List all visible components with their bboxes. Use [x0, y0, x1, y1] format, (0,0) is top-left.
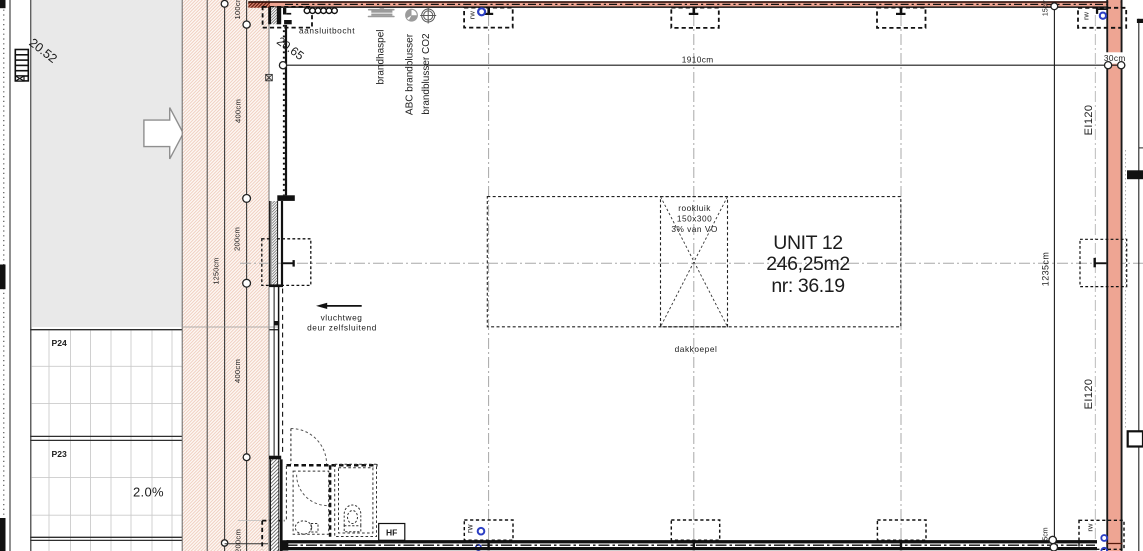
svg-text:400cm: 400cm	[233, 359, 242, 383]
svg-text:3% van VO: 3% van VO	[671, 224, 718, 234]
svg-text:nr: 36.19: nr: 36.19	[771, 275, 844, 297]
svg-text:EI120: EI120	[1083, 105, 1095, 136]
svg-text:rw: rw	[468, 11, 477, 20]
svg-text:deur zelfsluitend: deur zelfsluitend	[307, 323, 377, 333]
svg-text:1250cm: 1250cm	[212, 257, 221, 284]
svg-text:200cm: 200cm	[234, 529, 243, 551]
svg-text:HF: HF	[386, 528, 397, 538]
svg-text:1910cm: 1910cm	[682, 55, 714, 65]
svg-text:2.0%: 2.0%	[133, 485, 164, 500]
svg-text:15cm: 15cm	[1043, 0, 1050, 16]
svg-text:P23: P23	[52, 449, 68, 459]
svg-text:UNIT 12: UNIT 12	[773, 232, 842, 254]
svg-text:150x300: 150x300	[677, 213, 712, 223]
svg-text:400cm: 400cm	[234, 99, 243, 123]
svg-text:rw: rw	[1086, 523, 1095, 532]
svg-text:dakkoepel: dakkoepel	[675, 344, 718, 354]
svg-text:200cm: 200cm	[233, 227, 242, 251]
svg-text:ABC brandblusser: ABC brandblusser	[405, 33, 416, 115]
svg-text:1235cm: 1235cm	[1040, 252, 1050, 286]
svg-text:brandhaspel: brandhaspel	[376, 29, 387, 84]
svg-text:rw: rw	[465, 524, 474, 533]
svg-text:246,25m2: 246,25m2	[766, 253, 850, 275]
svg-text:P24: P24	[52, 338, 68, 348]
svg-text:rw: rw	[1081, 11, 1090, 20]
svg-text:brandblusser CO2: brandblusser CO2	[421, 33, 432, 115]
svg-text:rookluik: rookluik	[678, 203, 711, 213]
svg-text:100cm: 100cm	[233, 0, 242, 20]
svg-text:aansluitbocht: aansluitbocht	[299, 26, 355, 36]
svg-text:5cm: 5cm	[1043, 527, 1050, 540]
svg-text:vluchtweg: vluchtweg	[321, 312, 363, 322]
svg-text:EI120: EI120	[1083, 379, 1095, 410]
